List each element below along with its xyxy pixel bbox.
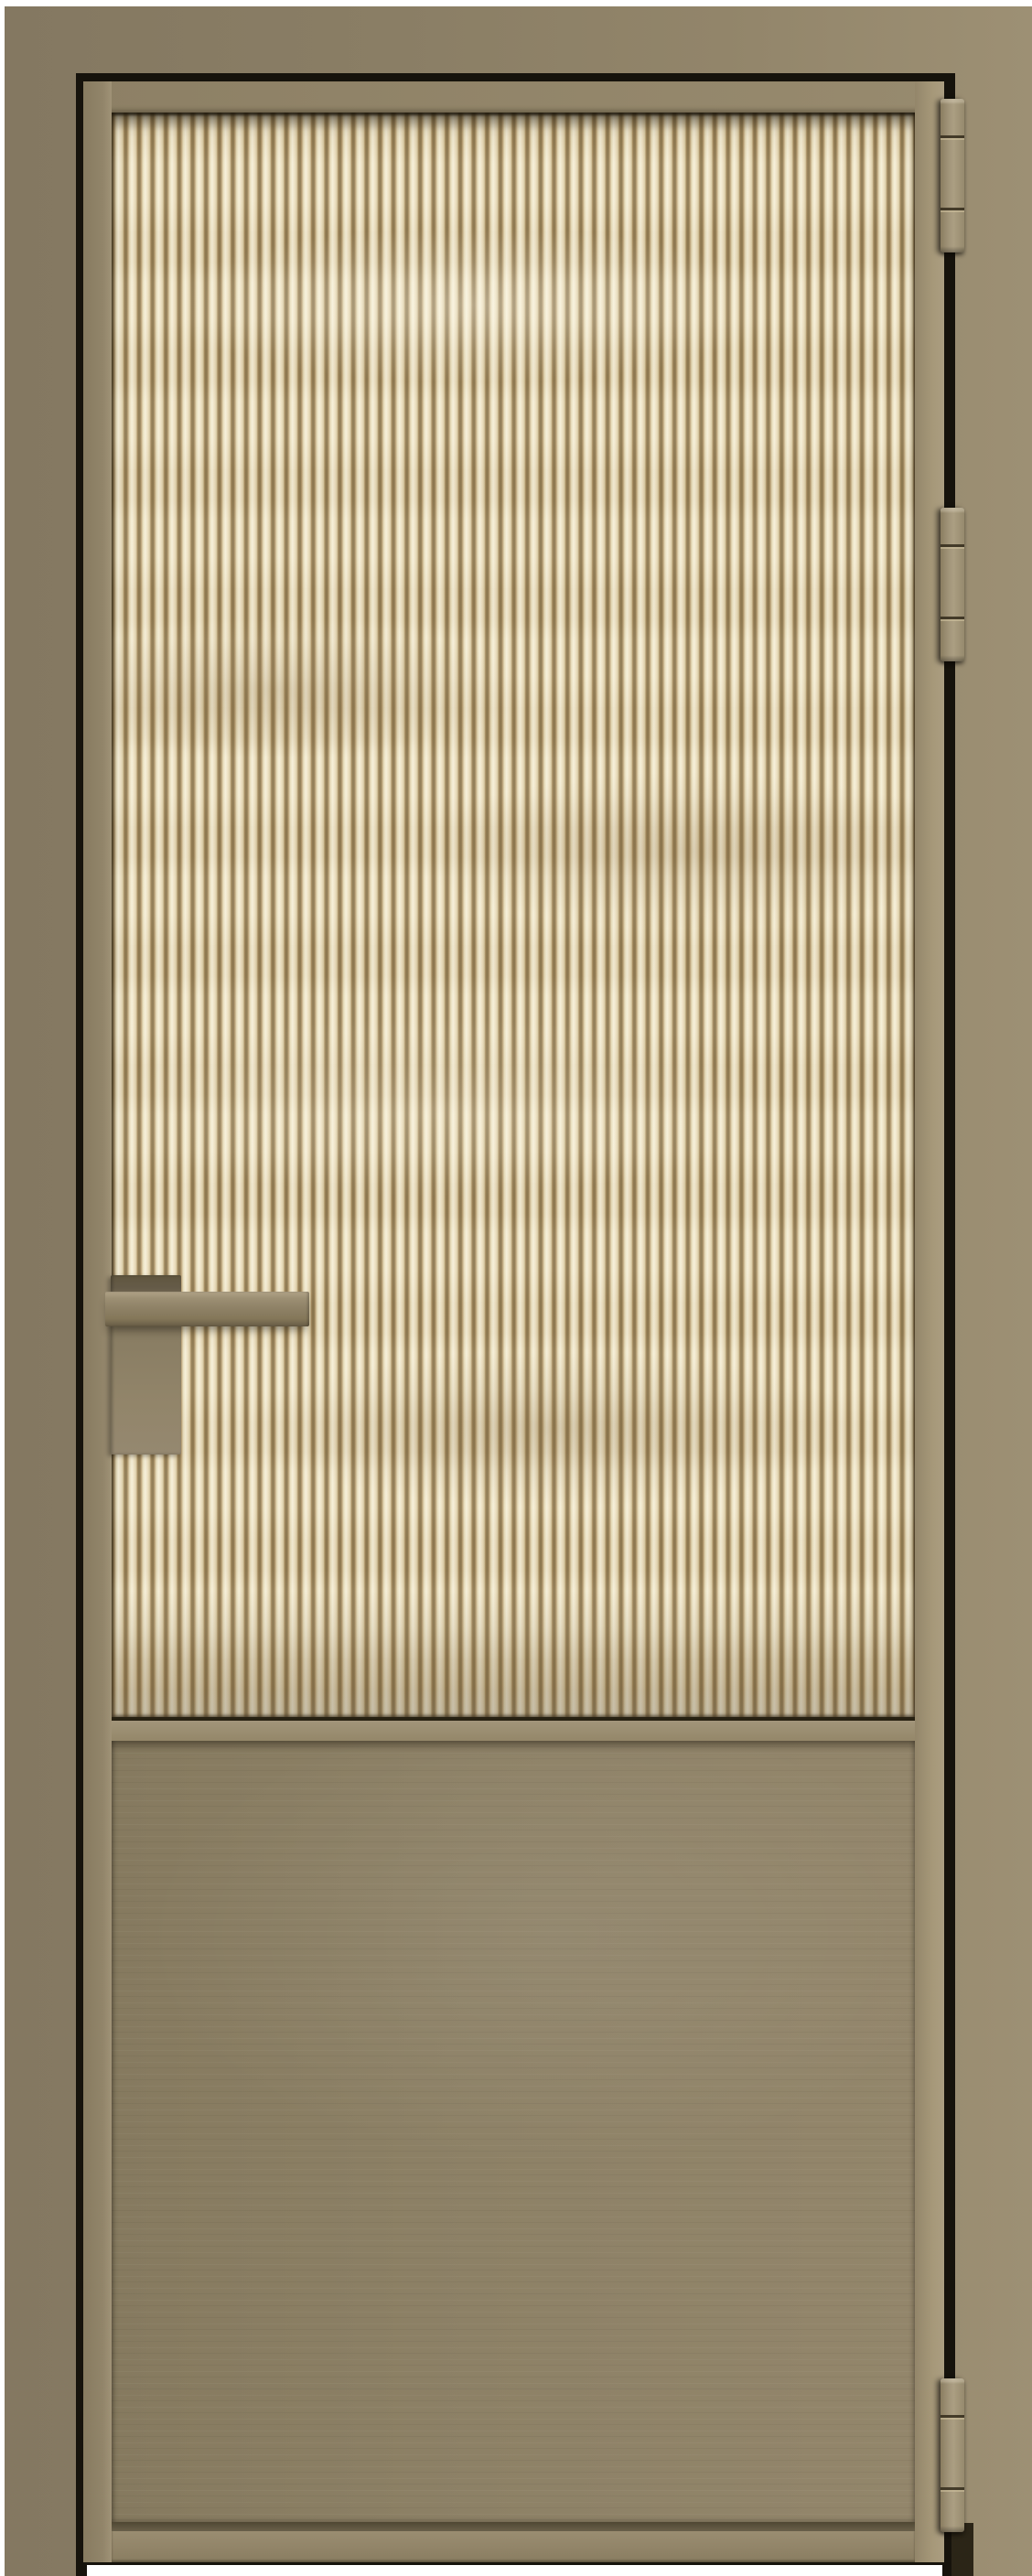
floor-strip	[87, 2565, 942, 2576]
hinge-bottom	[941, 2378, 964, 2532]
bottom-rail-shadow-line	[112, 2522, 915, 2531]
handle-lever	[105, 1292, 309, 1326]
door-leaf	[83, 81, 944, 2562]
leaf-bottom-rail	[112, 2531, 915, 2562]
fluted-glass-panel	[112, 113, 915, 1717]
leaf-bottom-panel	[112, 1741, 915, 2522]
hinge-middle	[941, 508, 964, 661]
door-handle-assembly	[105, 1275, 309, 1454]
glass-reflections	[112, 113, 915, 1717]
leaf-mid-rail	[112, 1717, 915, 1741]
door-product-photo	[0, 0, 1032, 2576]
hinge-top	[941, 99, 964, 252]
leaf-top-rail	[83, 81, 944, 113]
leaf-right-stile	[915, 81, 944, 2562]
